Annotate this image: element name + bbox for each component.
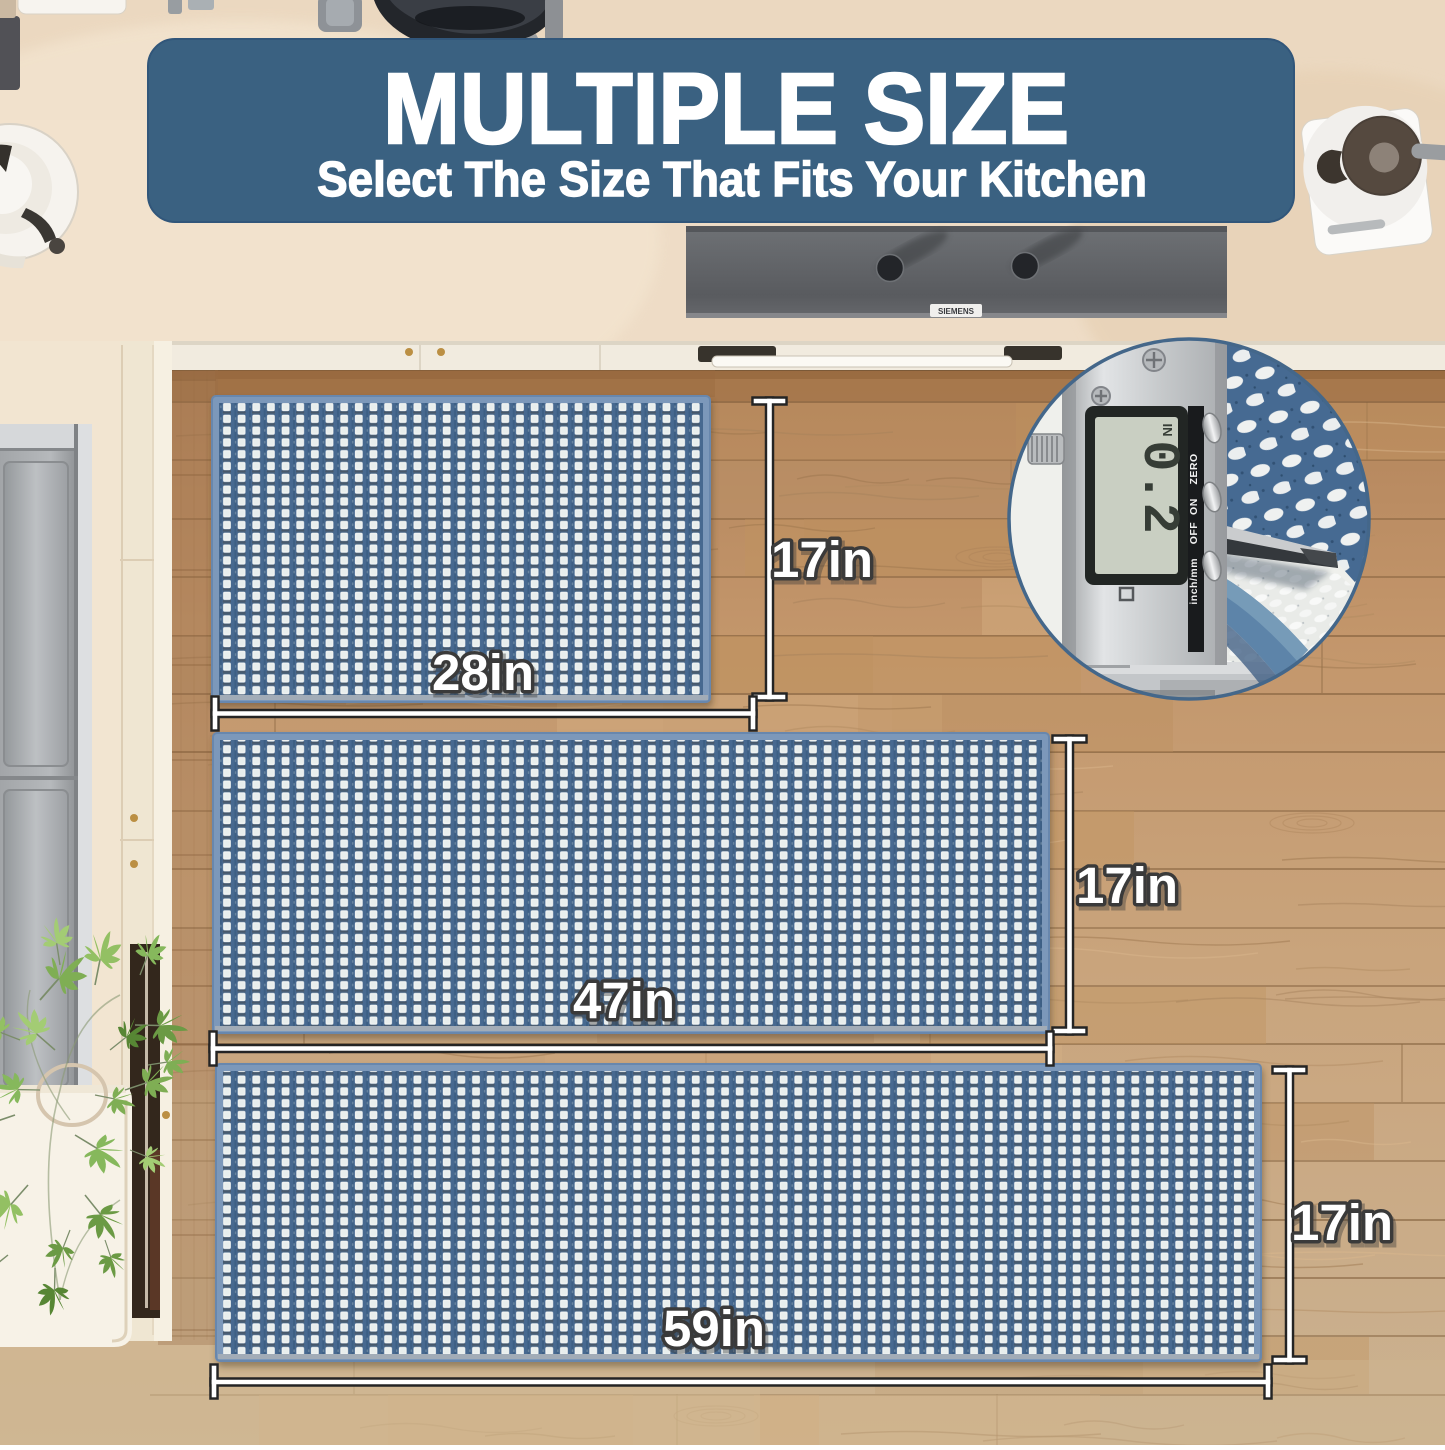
svg-text:IN: IN: [1160, 424, 1175, 437]
svg-text:17in: 17in: [771, 531, 873, 588]
svg-text:Select The Size That Fits Your: Select The Size That Fits Your Kitchen: [317, 153, 1147, 208]
svg-text:28in: 28in: [432, 644, 534, 701]
svg-text:47in: 47in: [573, 972, 675, 1029]
svg-text:59in: 59in: [663, 1300, 765, 1357]
svg-text:17in: 17in: [1291, 1194, 1393, 1251]
svg-text:MULTIPLE SIZE: MULTIPLE SIZE: [383, 54, 1069, 165]
svg-text:inch/mm OFF ON ZERO: inch/mm OFF ON ZERO: [1188, 453, 1200, 604]
svg-text:0.2: 0.2: [1129, 440, 1188, 534]
svg-text:SIEMENS: SIEMENS: [938, 307, 975, 316]
svg-text:17in: 17in: [1076, 857, 1178, 914]
